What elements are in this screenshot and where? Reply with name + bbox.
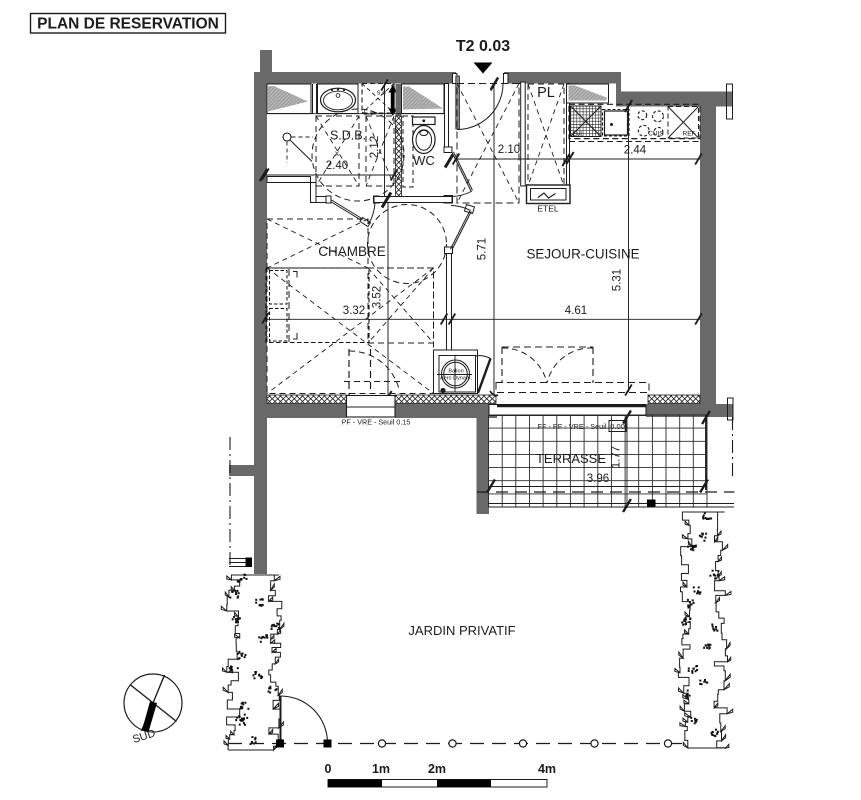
svg-text:3.96: 3.96 xyxy=(587,473,609,485)
svg-text:FF - PF - VRE - Seuil: FF - PF - VRE - Seuil xyxy=(538,422,607,431)
svg-text:Ballon: Ballon xyxy=(448,369,463,375)
svg-text:1m: 1m xyxy=(372,762,390,776)
svg-text:CUIS: CUIS xyxy=(648,131,664,138)
svg-text:WC: WC xyxy=(413,153,435,168)
svg-text:SEJOUR-CUISINE: SEJOUR-CUISINE xyxy=(526,247,639,262)
svg-text:CHAMBRE: CHAMBRE xyxy=(318,244,386,259)
svg-text:5.71: 5.71 xyxy=(477,238,489,260)
svg-text:S.D.B.: S.D.B. xyxy=(330,129,366,143)
svg-text:2.44: 2.44 xyxy=(624,145,647,157)
svg-text:PLAN DE RESERVATION: PLAN DE RESERVATION xyxy=(37,16,219,33)
svg-text:1.77: 1.77 xyxy=(611,446,623,468)
svg-text:2m: 2m xyxy=(428,762,446,776)
svg-text:5.31: 5.31 xyxy=(612,269,624,291)
svg-text:4.61: 4.61 xyxy=(565,305,587,317)
svg-text:Aero Dynam.: Aero Dynam. xyxy=(440,376,473,382)
svg-text:2.40: 2.40 xyxy=(326,160,348,172)
svg-text:0: 0 xyxy=(325,762,332,776)
svg-text:4m: 4m xyxy=(538,762,556,776)
svg-text:2.12: 2.12 xyxy=(369,136,381,158)
svg-text:3.52: 3.52 xyxy=(372,286,384,308)
svg-text:0.00: 0.00 xyxy=(610,422,625,431)
svg-text:EVI.: EVI. xyxy=(572,132,584,138)
svg-text:TERRASSE: TERRASSE xyxy=(536,451,606,466)
svg-text:REF: REF xyxy=(683,131,696,138)
svg-text:2.10: 2.10 xyxy=(498,144,520,156)
svg-text:JARDIN PRIVATIF: JARDIN PRIVATIF xyxy=(408,623,515,638)
svg-text:ETEL: ETEL xyxy=(537,204,559,214)
svg-text:T2 0.03: T2 0.03 xyxy=(456,38,510,55)
svg-text:PL: PL xyxy=(537,85,555,101)
svg-text:3.32: 3.32 xyxy=(343,305,365,317)
svg-text:SUD: SUD xyxy=(131,727,157,746)
svg-text:PF - VRE - Seuil 0.15: PF - VRE - Seuil 0.15 xyxy=(342,418,411,427)
